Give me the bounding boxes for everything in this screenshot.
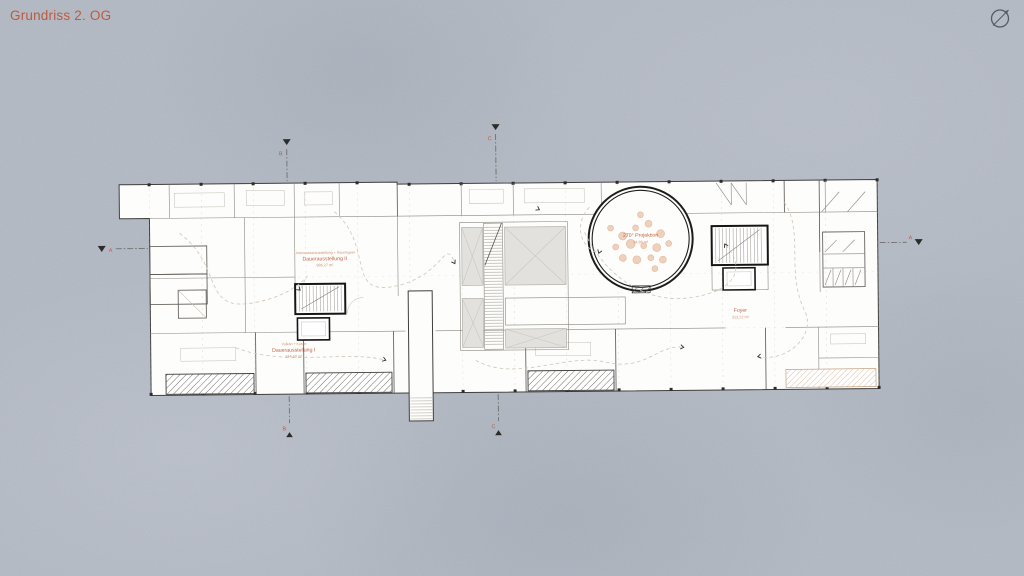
section-marker-c-top: C — [488, 124, 501, 181]
section-marker-a-right: A — [880, 235, 923, 245]
concrete-background: { "page": { "title": "Grundriss 2. OG" }… — [0, 0, 1024, 576]
section-marker-c-bottom: C — [491, 394, 502, 436]
svg-text:Dauerausstellung II: Dauerausstellung II — [302, 256, 347, 262]
section-marker-b-bottom: B — [282, 396, 293, 438]
svg-text:Vulkan + Küste: Vulkan + Küste — [282, 342, 306, 346]
svg-text:Dauerausstellung I: Dauerausstellung I — [272, 347, 315, 353]
svg-text:C: C — [488, 136, 492, 142]
svg-text:B: B — [279, 151, 283, 157]
svg-text:Unterwasserausstellung + Raumt: Unterwasserausstellung + Raumtypen — [294, 251, 355, 256]
svg-text:244.60 m²: 244.60 m² — [285, 355, 303, 359]
section-marker-a-left: A — [98, 246, 148, 254]
svg-text:313.22 m²: 313.22 m² — [732, 315, 750, 319]
page-title: Grundriss 2. OG — [10, 8, 111, 23]
section-marker-b-top: B — [279, 139, 291, 181]
svg-text:B: B — [282, 426, 286, 432]
svg-text:94.86 m²: 94.86 m² — [633, 240, 649, 244]
svg-text:C: C — [491, 424, 495, 430]
svg-text:986.27 m²: 986.27 m² — [316, 263, 334, 267]
north-arrow-icon — [986, 5, 1014, 33]
svg-text:A: A — [109, 248, 113, 254]
svg-text:A: A — [909, 235, 913, 241]
ramp — [408, 291, 433, 421]
floor-plan: A A B B C C Unterwasserausstellung + Rau… — [83, 111, 946, 439]
svg-text:Foyer: Foyer — [734, 308, 748, 314]
svg-text:270° Projektion: 270° Projektion — [623, 233, 658, 239]
building-outline — [119, 178, 879, 396]
